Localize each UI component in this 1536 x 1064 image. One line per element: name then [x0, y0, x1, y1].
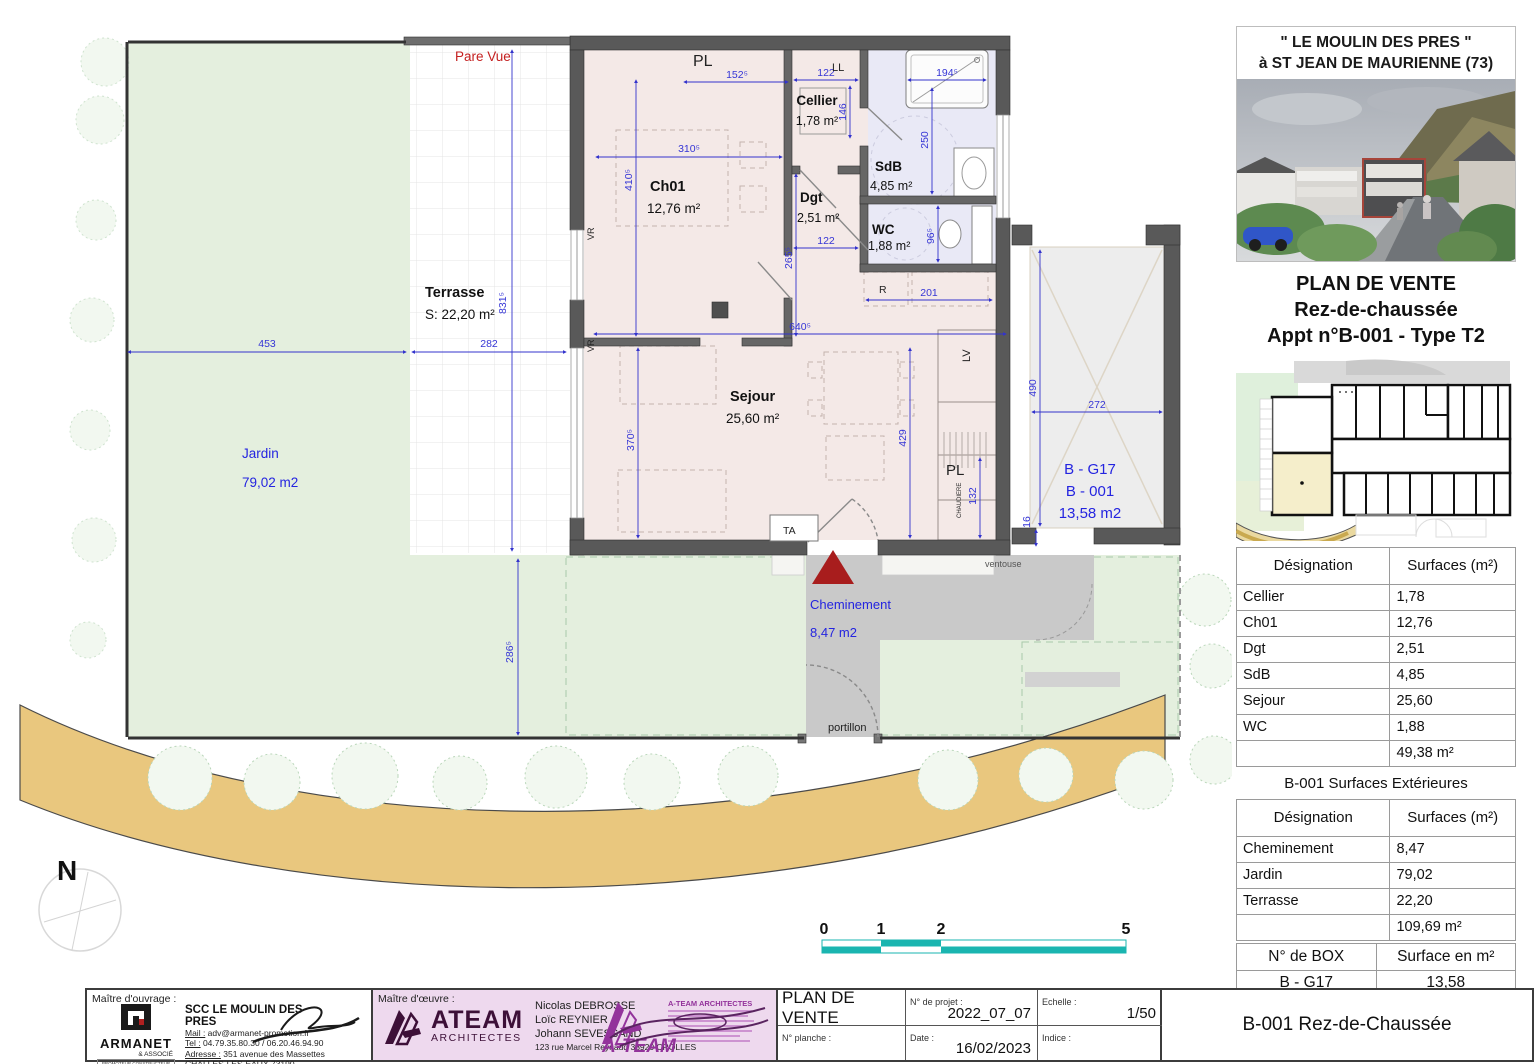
cell-designation: Jardin [1237, 862, 1390, 888]
cheminement-label: Cheminement [810, 597, 891, 612]
dgt-label: Dgt [800, 190, 823, 205]
exterior-table-title: B-001 Surfaces Extérieures [1236, 767, 1516, 799]
scale-value: 1/50 [1127, 1005, 1156, 1022]
dim-jardin-h2: 286⁵ [504, 641, 516, 663]
index-cell: Indice : [1038, 1026, 1162, 1060]
project-number-value: 2022_07_07 [948, 1005, 1031, 1022]
table-total-row: 109,69 m² [1237, 914, 1516, 940]
ta-label: TA [783, 525, 796, 537]
sheet-number-label: N° planche : [782, 1033, 831, 1043]
cell-designation: SdB [1237, 662, 1390, 688]
owner-mail-label: Mail : [185, 1028, 205, 1038]
north-compass: N [39, 855, 121, 951]
sdb-label: SdB [875, 159, 902, 174]
box-header-surface: Surface en m² [1376, 943, 1516, 970]
exterior-header-designation: Désignation [1237, 799, 1390, 836]
owner-label: Maître d'ouvrage : [92, 993, 176, 1005]
owner-address-label: Adresse : [185, 1049, 221, 1059]
dim-sdb-h: 250 [919, 131, 931, 149]
table-row: Jardin79,02 [1237, 862, 1516, 888]
table-row: Cellier1,78 [1237, 584, 1516, 610]
dim-box-h: 490 [1027, 379, 1039, 397]
r-label: R [879, 284, 887, 296]
scale-cell: Echelle : 1/50 [1038, 990, 1162, 1026]
table-row: N° de BOX Surface en m² [1237, 943, 1516, 970]
box-apt-label: B - 001 [1066, 483, 1114, 500]
cell-empty [1237, 740, 1390, 766]
box-area-label: 13,58 m2 [1059, 505, 1122, 522]
dim-wc-h: 96⁵ [925, 228, 937, 244]
interior-surfaces-table: Désignation Surfaces (m²) Cellier1,78 Ch… [1236, 547, 1516, 767]
project-title-line2: à ST JEAN DE MAURIENNE (73) [1239, 54, 1513, 75]
doc-type-cell: PLAN DE VENTE [778, 990, 906, 1026]
cell-designation: Cheminement [1237, 836, 1390, 862]
cell-surface: 1,78 [1390, 584, 1516, 610]
exterior-surfaces-table: Désignation Surfaces (m²) Cheminement8,4… [1236, 799, 1516, 941]
cell-surface: 1,88 [1390, 714, 1516, 740]
owner-tel-label: Tel : [185, 1038, 201, 1048]
dim-ch01-h: 410⁵ [623, 169, 635, 191]
title-block: Maître d'ouvrage : ARMANET & ASSOCIÉ PRO… [85, 988, 1534, 1062]
table-row: SdB4,85 [1237, 662, 1516, 688]
ateam-logo-name: ATEAM [431, 1009, 523, 1032]
cell-designation: WC [1237, 714, 1390, 740]
cell-designation: Dgt [1237, 636, 1390, 662]
project-number-cell: N° de projet : 2022_07_07 [906, 990, 1038, 1026]
cell-surface: 8,47 [1390, 836, 1516, 862]
interior-header-surfaces: Surfaces (m²) [1390, 547, 1516, 584]
ateam-logo-icon [381, 1004, 425, 1048]
ch01-label: Ch01 [650, 179, 685, 195]
cell-surface: 22,20 [1390, 888, 1516, 914]
armanet-logo-tag: PROMOTEUR CONSTRUCTEUR [97, 1059, 175, 1064]
dim-sejour-w: 640⁵ [789, 321, 811, 333]
terrasse-label: Terrasse [425, 285, 484, 301]
cell-surface: 2,51 [1390, 636, 1516, 662]
cheminement-area: 8,47 m2 [810, 625, 857, 640]
owner-section: Maître d'ouvrage : ARMANET & ASSOCIÉ PRO… [87, 990, 373, 1060]
scale-bar: 0 1 2 5 [820, 921, 1131, 953]
sheet-number-cell: N° planche : [778, 1026, 906, 1060]
dim-kitchen-h: 429 [897, 429, 909, 447]
date-label: Date : [910, 1033, 934, 1043]
dim-pl-w: 152⁵ [726, 69, 748, 81]
doc-title-line3: Appt n°B-001 - Type T2 [1236, 323, 1516, 349]
scale-0: 0 [820, 921, 829, 938]
index-label: Indice : [1042, 1033, 1071, 1043]
dim-ch01-w: 310⁵ [678, 143, 700, 155]
project-title-line1: " LE MOULIN DES PRES " [1239, 33, 1513, 54]
chaudiere-label: CHAUDIERE [957, 483, 963, 518]
table-row: Ch0112,76 [1237, 610, 1516, 636]
dim-dgt-h: 265⁵ [783, 247, 795, 269]
table-row: Cheminement8,47 [1237, 836, 1516, 862]
jardin-area: 79,02 m2 [242, 475, 298, 490]
pl-kitchen-label: PL [946, 462, 964, 479]
sheet-name: B-001 Rez-de-Chaussée [1242, 1014, 1451, 1036]
dim-shower-w: 194⁵ [936, 67, 958, 79]
lv-label: LV [961, 349, 973, 362]
dgt-area: 2,51 m² [797, 211, 839, 225]
dim-terrasse-h: 831⁵ [497, 292, 509, 314]
dim-box-gap: 16 [1021, 516, 1033, 528]
cell-surface: 25,60 [1390, 688, 1516, 714]
vr-label-2: VR [586, 339, 596, 352]
interior-total: 49,38 m² [1390, 740, 1516, 766]
sejour-label: Sejour [730, 389, 775, 405]
table-row: Dgt2,51 [1237, 636, 1516, 662]
key-plan [1236, 355, 1516, 541]
architect-label: Maître d'œuvre : [378, 993, 455, 1005]
cell-surface: 79,02 [1390, 862, 1516, 888]
interior-header-designation: Désignation [1237, 547, 1390, 584]
doc-type: PLAN DE VENTE [782, 988, 901, 1028]
armanet-logo-sub: & ASSOCIÉ [93, 1051, 173, 1058]
scale-5: 5 [1122, 921, 1131, 938]
owner-city: CHALLES-LES-EAUX 73190 [185, 1059, 335, 1064]
jardin-label: Jardin [242, 446, 279, 461]
scale-2: 2 [937, 921, 946, 938]
cell-surface: 12,76 [1390, 610, 1516, 636]
dim-terrasse-w: 282 [480, 338, 498, 350]
cellier-label: Cellier [796, 93, 838, 108]
table-row: Terrasse22,20 [1237, 888, 1516, 914]
cell-designation: Terrasse [1237, 888, 1390, 914]
cell-designation: Sejour [1237, 688, 1390, 714]
ventouse-label: ventouse [985, 559, 1022, 569]
box-header-num: N° de BOX [1237, 943, 1377, 970]
architect-section: Maître d'œuvre : ATEAM ARCHITECTES Nicol… [373, 990, 778, 1060]
sejour-area: 25,60 m² [726, 411, 780, 426]
armanet-logo-icon [121, 1004, 151, 1030]
dim-wc-w: 201 [920, 287, 938, 299]
plan-sheet: 453 282 831⁵ 286⁵ 152⁵ 122 146 194⁵ 250 … [0, 0, 1536, 1064]
doc-title-line1: PLAN DE VENTE [1236, 271, 1516, 297]
dim-dgt-w: 122 [817, 235, 835, 247]
architect-stamp: A-TEAM ARCHITECTES A-TEAM [580, 994, 770, 1056]
terrasse-area: S: 22,20 m² [425, 307, 495, 322]
doc-title-block: PLAN DE VENTE Rez-de-chaussée Appt n°B-0… [1236, 262, 1516, 355]
floor-plan-drawing: 453 282 831⁵ 286⁵ 152⁵ 122 146 194⁵ 250 … [0, 0, 1232, 985]
portillon-label: portillon [828, 722, 867, 734]
ateam-logo-sub: ARCHITECTES [431, 1032, 523, 1044]
date-value: 16/02/2023 [956, 1040, 1031, 1057]
cell-designation: Ch01 [1237, 610, 1390, 636]
pl-placard-label: PL [693, 53, 713, 70]
box-id-label: B - G17 [1064, 461, 1116, 478]
dim-kitchen-pl: 132 [967, 487, 979, 505]
dim-sejour-h: 370⁵ [625, 429, 637, 451]
doc-title-line2: Rez-de-chaussée [1236, 297, 1516, 323]
project-photo [1237, 79, 1515, 261]
date-cell: Date : 16/02/2023 [906, 1026, 1038, 1060]
wc-area: 1,88 m² [868, 239, 910, 253]
sdb-area: 4,85 m² [870, 179, 912, 193]
dim-jardin-w: 453 [258, 338, 276, 350]
sheet-name-section: B-001 Rez-de-Chaussée [1162, 990, 1532, 1060]
scale-label: Echelle : [1042, 997, 1077, 1007]
owner-signature [251, 1000, 361, 1050]
north-label: N [57, 855, 77, 886]
exterior-header-surfaces: Surfaces (m²) [1390, 799, 1516, 836]
owner-address: Adresse : 351 avenue des Massettes [185, 1049, 335, 1059]
armanet-logo-name: ARMANET [93, 1036, 179, 1051]
table-row: Sejour25,60 [1237, 688, 1516, 714]
cell-surface: 4,85 [1390, 662, 1516, 688]
cell-designation: Cellier [1237, 584, 1390, 610]
right-panel: " LE MOULIN DES PRES " à ST JEAN DE MAUR… [1236, 26, 1516, 997]
dim-cellier-h: 146 [837, 103, 849, 121]
owner-address-value: 351 avenue des Massettes [221, 1049, 325, 1059]
wc-label: WC [872, 222, 895, 237]
scale-1: 1 [877, 921, 886, 938]
project-title-block: " LE MOULIN DES PRES " à ST JEAN DE MAUR… [1236, 26, 1516, 262]
stamp-title: A-TEAM ARCHITECTES [668, 999, 752, 1008]
vr-label-1: VR [586, 227, 596, 240]
exterior-total: 109,69 m² [1390, 914, 1516, 940]
table-total-row: 49,38 m² [1237, 740, 1516, 766]
table-row: WC1,88 [1237, 714, 1516, 740]
cell-empty [1237, 914, 1390, 940]
cellier-area: 1,78 m² [796, 114, 838, 128]
info-section: PLAN DE VENTE N° de projet : 2022_07_07 … [778, 990, 1162, 1060]
dim-box-w: 272 [1088, 399, 1106, 411]
armanet-logo: ARMANET & ASSOCIÉ PROMOTEUR CONSTRUCTEUR [93, 1004, 179, 1064]
ll-label: LL [832, 62, 844, 74]
ch01-area: 12,76 m² [647, 201, 701, 216]
pare-vue-label: Pare Vue [455, 49, 511, 64]
